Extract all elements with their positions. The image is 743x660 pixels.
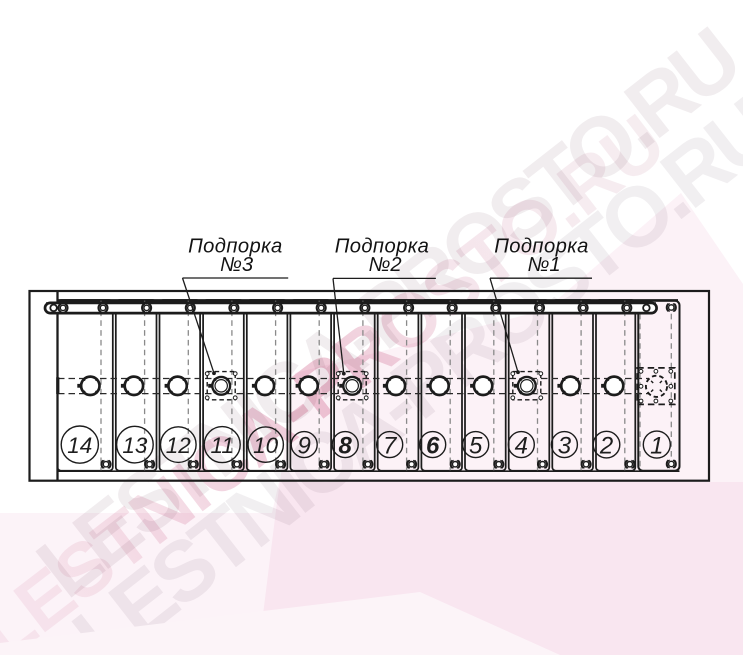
svg-text:8: 8 <box>339 432 353 459</box>
svg-text:7: 7 <box>383 432 398 459</box>
svg-text:5: 5 <box>469 432 483 459</box>
svg-text:11: 11 <box>211 433 234 458</box>
svg-text:1: 1 <box>650 432 663 459</box>
svg-text:9: 9 <box>298 432 311 459</box>
svg-text:№1: №1 <box>527 254 560 276</box>
svg-text:6: 6 <box>426 432 440 459</box>
svg-text:10: 10 <box>253 433 279 458</box>
svg-text:3: 3 <box>558 432 572 459</box>
svg-text:№3: №3 <box>220 254 254 276</box>
svg-text:№2: №2 <box>368 254 401 276</box>
svg-text:14: 14 <box>67 433 92 458</box>
svg-text:13: 13 <box>122 433 148 458</box>
svg-text:2: 2 <box>599 432 613 459</box>
svg-text:4: 4 <box>515 432 528 459</box>
svg-text:12: 12 <box>166 433 192 458</box>
